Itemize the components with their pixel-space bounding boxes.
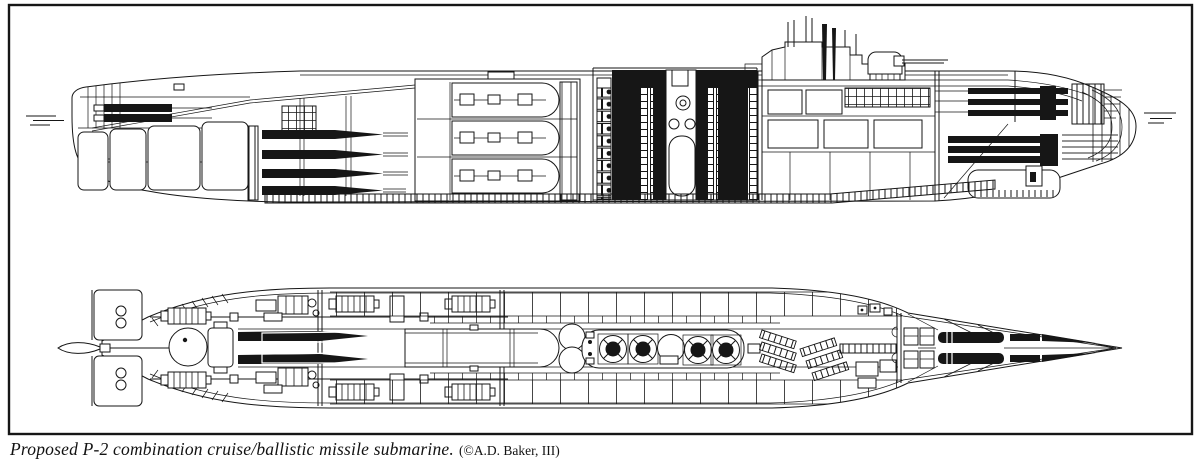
waterline-marks-left — [26, 116, 64, 125]
caption-credit: (©A.D. Baker, III) — [459, 443, 560, 458]
hangar-cylinder-plan — [405, 329, 559, 367]
profile-ballistic-missile-tubes — [593, 68, 757, 201]
plan-view — [58, 288, 1122, 408]
turntable — [169, 328, 207, 366]
figure: Proposed P-2 combination cruise/ballisti… — [0, 0, 1200, 473]
figure-caption: Proposed P-2 combination cruise/ballisti… — [10, 439, 1190, 460]
plan-missile-tubes — [582, 330, 760, 368]
profile-view — [26, 16, 1176, 203]
profile-sail-and-gun — [745, 16, 948, 80]
propeller — [58, 343, 100, 354]
waterline-marks-right — [1144, 113, 1176, 123]
caption-text: Proposed P-2 combination cruise/ballisti… — [10, 439, 454, 459]
profile-missile-hangar — [415, 72, 580, 201]
submarine-diagram — [0, 0, 1200, 473]
